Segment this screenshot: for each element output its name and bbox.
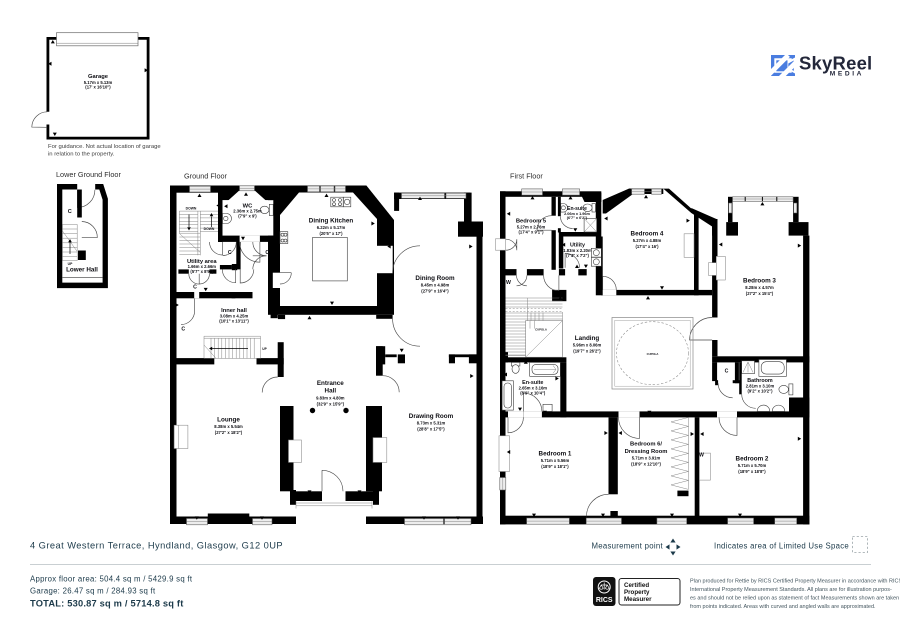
svg-text:(19'7" x 26'2"): (19'7" x 26'2") [573,348,601,353]
svg-text:UP: UP [68,262,73,266]
svg-text:DOWN: DOWN [186,206,197,210]
svg-text:(18'9" x 12'10"): (18'9" x 12'10") [631,461,661,466]
svg-text:(17' x 16'10"): (17' x 16'10") [85,85,111,90]
svg-text:Lower Ground Floor: Lower Ground Floor [56,170,121,179]
svg-text:(7'9" x 9'): (7'9" x 9') [238,213,257,218]
svg-text:Lower Hall: Lower Hall [66,267,98,274]
svg-text:C: C [193,285,197,291]
svg-text:(27'2" x 18'2"): (27'2" x 18'2") [215,430,243,435]
svg-text:(20'5" x 17'): (20'5" x 17') [319,231,343,236]
svg-text:C: C [725,369,729,375]
svg-text:Certified: Certified [624,582,649,589]
svg-text:8.45m x 4.98m: 8.45m x 4.98m [421,283,450,288]
svg-text:(18'9" x 18'8"): (18'9" x 18'8") [738,469,766,474]
svg-text:Lounge: Lounge [217,417,240,424]
svg-text:(18'9" x 18'1"): (18'9" x 18'1") [541,464,569,469]
svg-text:Measurement point: Measurement point [591,542,663,551]
svg-text:Bedroom 6/: Bedroom 6/ [630,442,662,448]
svg-text:W: W [506,280,511,286]
svg-text:(27'2" x 15'4"): (27'2" x 15'4") [746,291,774,296]
svg-text:TOTAL: 530.87 sq m / 5714.8 sq: TOTAL: 530.87 sq m / 5714.8 sq ft [30,599,184,609]
svg-text:(6'7" x 6'2"): (6'7" x 6'2") [567,216,588,220]
svg-text:Hall: Hall [325,388,337,395]
svg-text:Bedroom 3: Bedroom 3 [743,278,776,285]
svg-text:C: C [265,250,269,256]
svg-text:8.73m x 5.31m: 8.73m x 5.31m [417,421,446,426]
svg-text:in relation to the property.: in relation to the property. [48,151,115,157]
svg-text:8.38m x 5.54m: 8.38m x 5.54m [214,424,243,429]
svg-text:International Property Measur: International Property Measurement Stand… [690,587,892,593]
svg-text:(5'7" x 8'9"): (5'7" x 8'9") [190,269,213,274]
svg-text:Drawing Room: Drawing Room [409,413,454,420]
svg-text:9.83m x 4.80m: 9.83m x 4.80m [316,396,345,401]
svg-text:Dressing Room: Dressing Room [625,449,668,455]
svg-text:5.71m x 3.91m: 5.71m x 3.91m [632,456,661,461]
svg-text:Dining Room: Dining Room [415,275,455,282]
svg-text:5.27m x 4.88m: 5.27m x 4.88m [633,238,662,243]
svg-text:5.27m x 2.76m: 5.27m x 2.76m [517,224,546,229]
svg-text:(17'4" x 9'1"): (17'4" x 9'1") [518,230,544,235]
svg-text:(32'9" x 15'9"): (32'9" x 15'9") [317,401,345,406]
svg-text:5.96m x 8.06m: 5.96m x 8.06m [573,343,602,348]
svg-text:Bedroom 4: Bedroom 4 [631,231,664,238]
svg-text:8.28m x 4.57m: 8.28m x 4.57m [745,285,774,290]
svg-text:5.71m x 5.56m: 5.71m x 5.56m [541,458,570,463]
svg-text:(8'9" x 10'4"): (8'9" x 10'4") [520,391,546,396]
svg-text:Ground Floor: Ground Floor [184,172,228,181]
svg-text:Property: Property [624,589,650,596]
svg-text:Bedroom 2: Bedroom 2 [736,456,769,463]
svg-text:DOWN: DOWN [204,227,215,231]
svg-text:CUPOLA: CUPOLA [535,328,547,332]
svg-text:Plan produced for Rettie by RI: Plan produced for Rettie by RICS Certifi… [690,579,900,585]
svg-text:Bedroom 1: Bedroom 1 [539,451,572,458]
svg-text:Dining Kitchen: Dining Kitchen [309,218,354,225]
svg-text:Entrance: Entrance [317,380,344,387]
svg-text:C: C [228,250,232,256]
svg-text:(27'9" x 16'4"): (27'9" x 16'4") [421,288,449,293]
svg-text:(7'4" x 7'2"): (7'4" x 7'2") [566,253,589,258]
svg-text:(9'2" x 10'2"): (9'2" x 10'2") [747,388,773,393]
svg-text:CUPOLA: CUPOLA [647,352,659,356]
svg-text:from points indicated. Areas w: from points indicated. Areas with curved… [690,604,876,610]
svg-text:W: W [699,453,704,459]
svg-text:6.22m x 5.17m: 6.22m x 5.17m [317,225,346,230]
svg-text:es and should not be relied up: es and should not be relied upon as stat… [690,596,899,602]
svg-text:Indicates area of Limited Use: Indicates area of Limited Use Space [714,542,849,551]
svg-text:MEDIA: MEDIA [830,71,864,78]
svg-text:(28'8" x 17'5"): (28'8" x 17'5") [417,426,445,431]
svg-text:C: C [68,209,72,215]
svg-text:(10'1" x 13'11"): (10'1" x 13'11") [219,318,249,323]
svg-text:(17'4" x 16'): (17'4" x 16') [635,244,659,249]
svg-text:First Floor: First Floor [510,172,543,181]
svg-text:5.71m x 5.70m: 5.71m x 5.70m [738,463,767,468]
svg-text:For guidance. Not actual locat: For guidance. Not actual location of gar… [48,144,161,150]
svg-text:4 Great Western Terrace, Hyndl: 4 Great Western Terrace, Hyndland, Glasg… [30,541,283,551]
svg-text:Approx floor area: 504.4 sq m: Approx floor area: 504.4 sq m / 5429.9 s… [30,575,193,584]
svg-text:Garage: 26.47 sq m / 284.93 sq: Garage: 26.47 sq m / 284.93 sq ft [30,587,156,596]
svg-text:Landing: Landing [575,335,600,342]
svg-text:RICS: RICS [596,597,613,604]
svg-text:Measurer: Measurer [624,596,652,603]
svg-text:C: C [181,327,185,333]
